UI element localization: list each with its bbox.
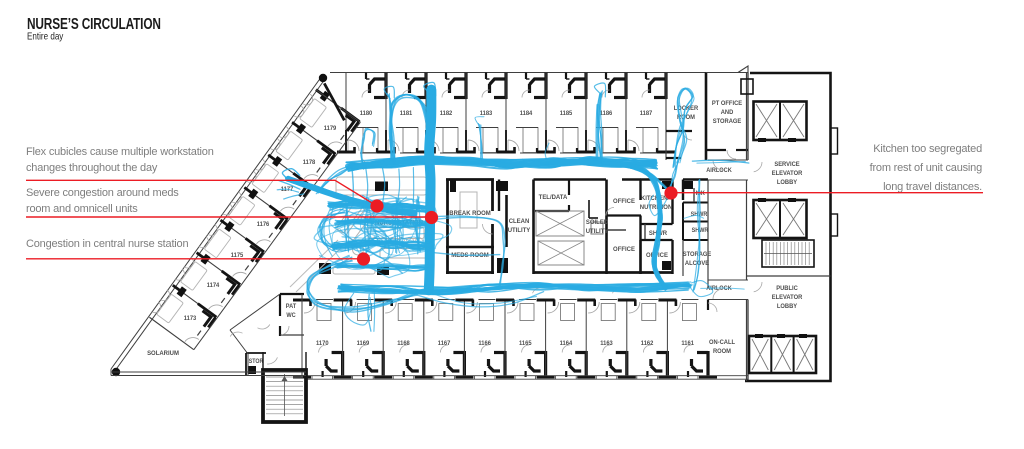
svg-text:long travel distances.: long travel distances. bbox=[883, 181, 982, 193]
svg-text:1164: 1164 bbox=[560, 340, 573, 347]
svg-text:1166: 1166 bbox=[478, 340, 491, 347]
svg-text:1184: 1184 bbox=[520, 110, 533, 117]
svg-text:LOBBY: LOBBY bbox=[777, 179, 798, 186]
svg-text:OFFICE: OFFICE bbox=[613, 198, 636, 205]
svg-text:PUBLIC: PUBLIC bbox=[776, 285, 798, 292]
svg-text:1161: 1161 bbox=[681, 340, 694, 347]
svg-text:1185: 1185 bbox=[560, 110, 573, 117]
svg-text:WC: WC bbox=[286, 313, 296, 319]
svg-text:1168: 1168 bbox=[397, 340, 410, 347]
svg-text:OFFICE: OFFICE bbox=[613, 246, 636, 253]
svg-text:AND: AND bbox=[721, 109, 734, 116]
svg-text:ELEVATOR: ELEVATOR bbox=[772, 170, 803, 177]
svg-text:LOBBY: LOBBY bbox=[777, 303, 798, 310]
svg-text:Flex cubicles cause multiple w: Flex cubicles cause multiple workstation bbox=[26, 146, 214, 158]
svg-text:TEL/DATA: TEL/DATA bbox=[539, 194, 568, 201]
svg-text:Severe congestion around meds: Severe congestion around meds bbox=[26, 187, 179, 199]
svg-text:UTILITY: UTILITY bbox=[508, 227, 531, 234]
svg-text:1186: 1186 bbox=[600, 110, 613, 117]
svg-text:AIRLOCK: AIRLOCK bbox=[706, 168, 732, 174]
svg-text:1176: 1176 bbox=[257, 221, 270, 228]
svg-text:Kitchen too segregated: Kitchen too segregated bbox=[873, 143, 982, 155]
svg-text:CLEAN: CLEAN bbox=[509, 218, 530, 225]
svg-text:NUTRITION: NUTRITION bbox=[640, 204, 673, 211]
svg-text:1169: 1169 bbox=[357, 340, 370, 347]
svg-text:SERVICE: SERVICE bbox=[774, 161, 799, 168]
svg-text:1163: 1163 bbox=[600, 340, 613, 347]
svg-text:1181: 1181 bbox=[400, 110, 413, 117]
svg-text:1183: 1183 bbox=[480, 110, 493, 117]
svg-text:1174: 1174 bbox=[207, 282, 220, 289]
svg-text:1178: 1178 bbox=[303, 159, 316, 166]
svg-text:1170: 1170 bbox=[316, 340, 329, 347]
svg-text:1175: 1175 bbox=[231, 252, 244, 259]
svg-text:UTILITY: UTILITY bbox=[586, 228, 609, 235]
svg-text:PT OFFICE: PT OFFICE bbox=[712, 100, 742, 107]
svg-text:changes throughout the day: changes throughout the day bbox=[26, 162, 158, 174]
svg-text:SOLARIUM: SOLARIUM bbox=[147, 350, 179, 357]
svg-text:1167: 1167 bbox=[438, 340, 451, 347]
svg-text:from rest of unit causing: from rest of unit causing bbox=[870, 162, 982, 174]
svg-text:ROOM: ROOM bbox=[713, 348, 731, 355]
svg-text:1182: 1182 bbox=[440, 110, 453, 117]
svg-text:ON-CALL: ON-CALL bbox=[709, 339, 735, 346]
svg-text:NURSE’S CIRCULATION: NURSE’S CIRCULATION bbox=[27, 14, 161, 32]
svg-text:SOILED: SOILED bbox=[586, 219, 609, 226]
svg-text:1179: 1179 bbox=[324, 125, 337, 132]
svg-text:room and omnicell units: room and omnicell units bbox=[26, 203, 138, 215]
svg-text:ELEVATOR: ELEVATOR bbox=[772, 294, 803, 301]
svg-text:1165: 1165 bbox=[519, 340, 532, 347]
svg-text:Congestion in central nurse st: Congestion in central nurse station bbox=[26, 238, 188, 250]
svg-text:1187: 1187 bbox=[640, 110, 653, 117]
svg-text:STORAGE: STORAGE bbox=[713, 118, 742, 125]
svg-text:Entire day: Entire day bbox=[27, 31, 64, 42]
svg-text:1173: 1173 bbox=[184, 315, 197, 322]
svg-text:PAT: PAT bbox=[286, 304, 297, 310]
svg-text:STOR: STOR bbox=[249, 359, 264, 365]
svg-text:STORAGE: STORAGE bbox=[683, 251, 712, 258]
svg-text:1180: 1180 bbox=[360, 110, 373, 117]
svg-text:1162: 1162 bbox=[641, 340, 654, 347]
